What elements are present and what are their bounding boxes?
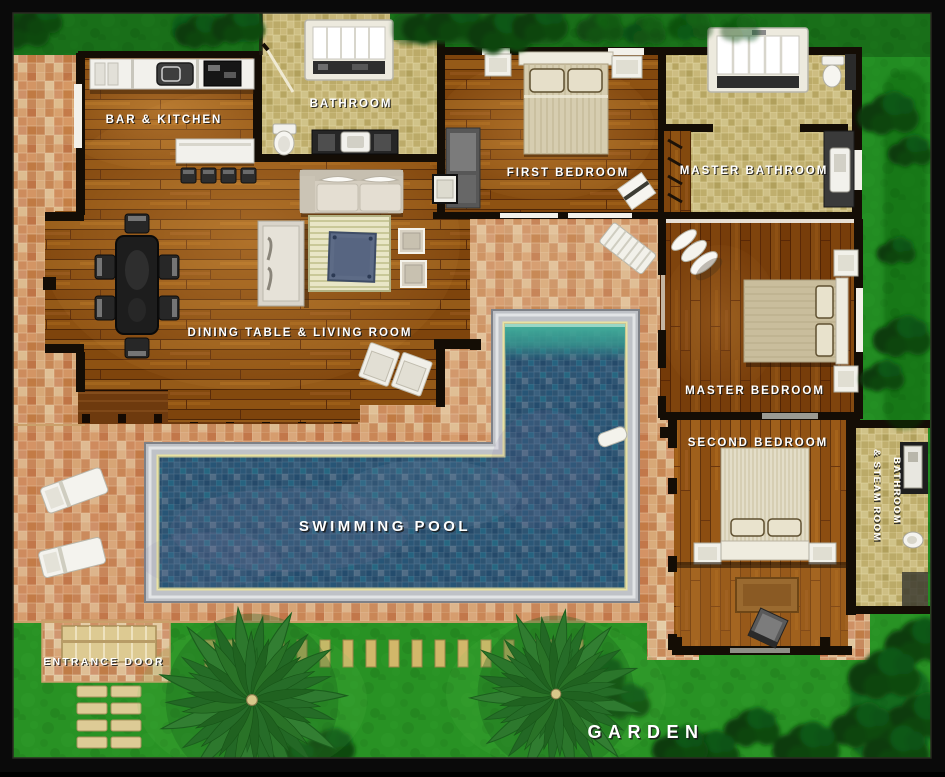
svg-text:FIRST BEDROOM: FIRST BEDROOM bbox=[507, 167, 629, 179]
svg-text:BAR & KITCHEN: BAR & KITCHEN bbox=[106, 114, 223, 126]
svg-text:ENTRANCE DOOR: ENTRANCE DOOR bbox=[43, 656, 164, 668]
svg-text:BATHROOM: BATHROOM bbox=[310, 98, 393, 110]
svg-text:SWIMMING POOL: SWIMMING POOL bbox=[299, 518, 471, 535]
svg-text:MASTER BEDROOM: MASTER BEDROOM bbox=[685, 385, 825, 397]
svg-text:MASTER BATHROOM: MASTER BATHROOM bbox=[680, 165, 829, 177]
svg-text:& STEAM ROOM: & STEAM ROOM bbox=[871, 449, 882, 542]
svg-text:BATHROOM: BATHROOM bbox=[891, 457, 902, 524]
svg-text:SECOND BEDROOM: SECOND BEDROOM bbox=[688, 437, 828, 449]
svg-text:GARDEN: GARDEN bbox=[587, 722, 704, 742]
svg-text:DINING TABLE & LIVING ROOM: DINING TABLE & LIVING ROOM bbox=[188, 327, 413, 339]
